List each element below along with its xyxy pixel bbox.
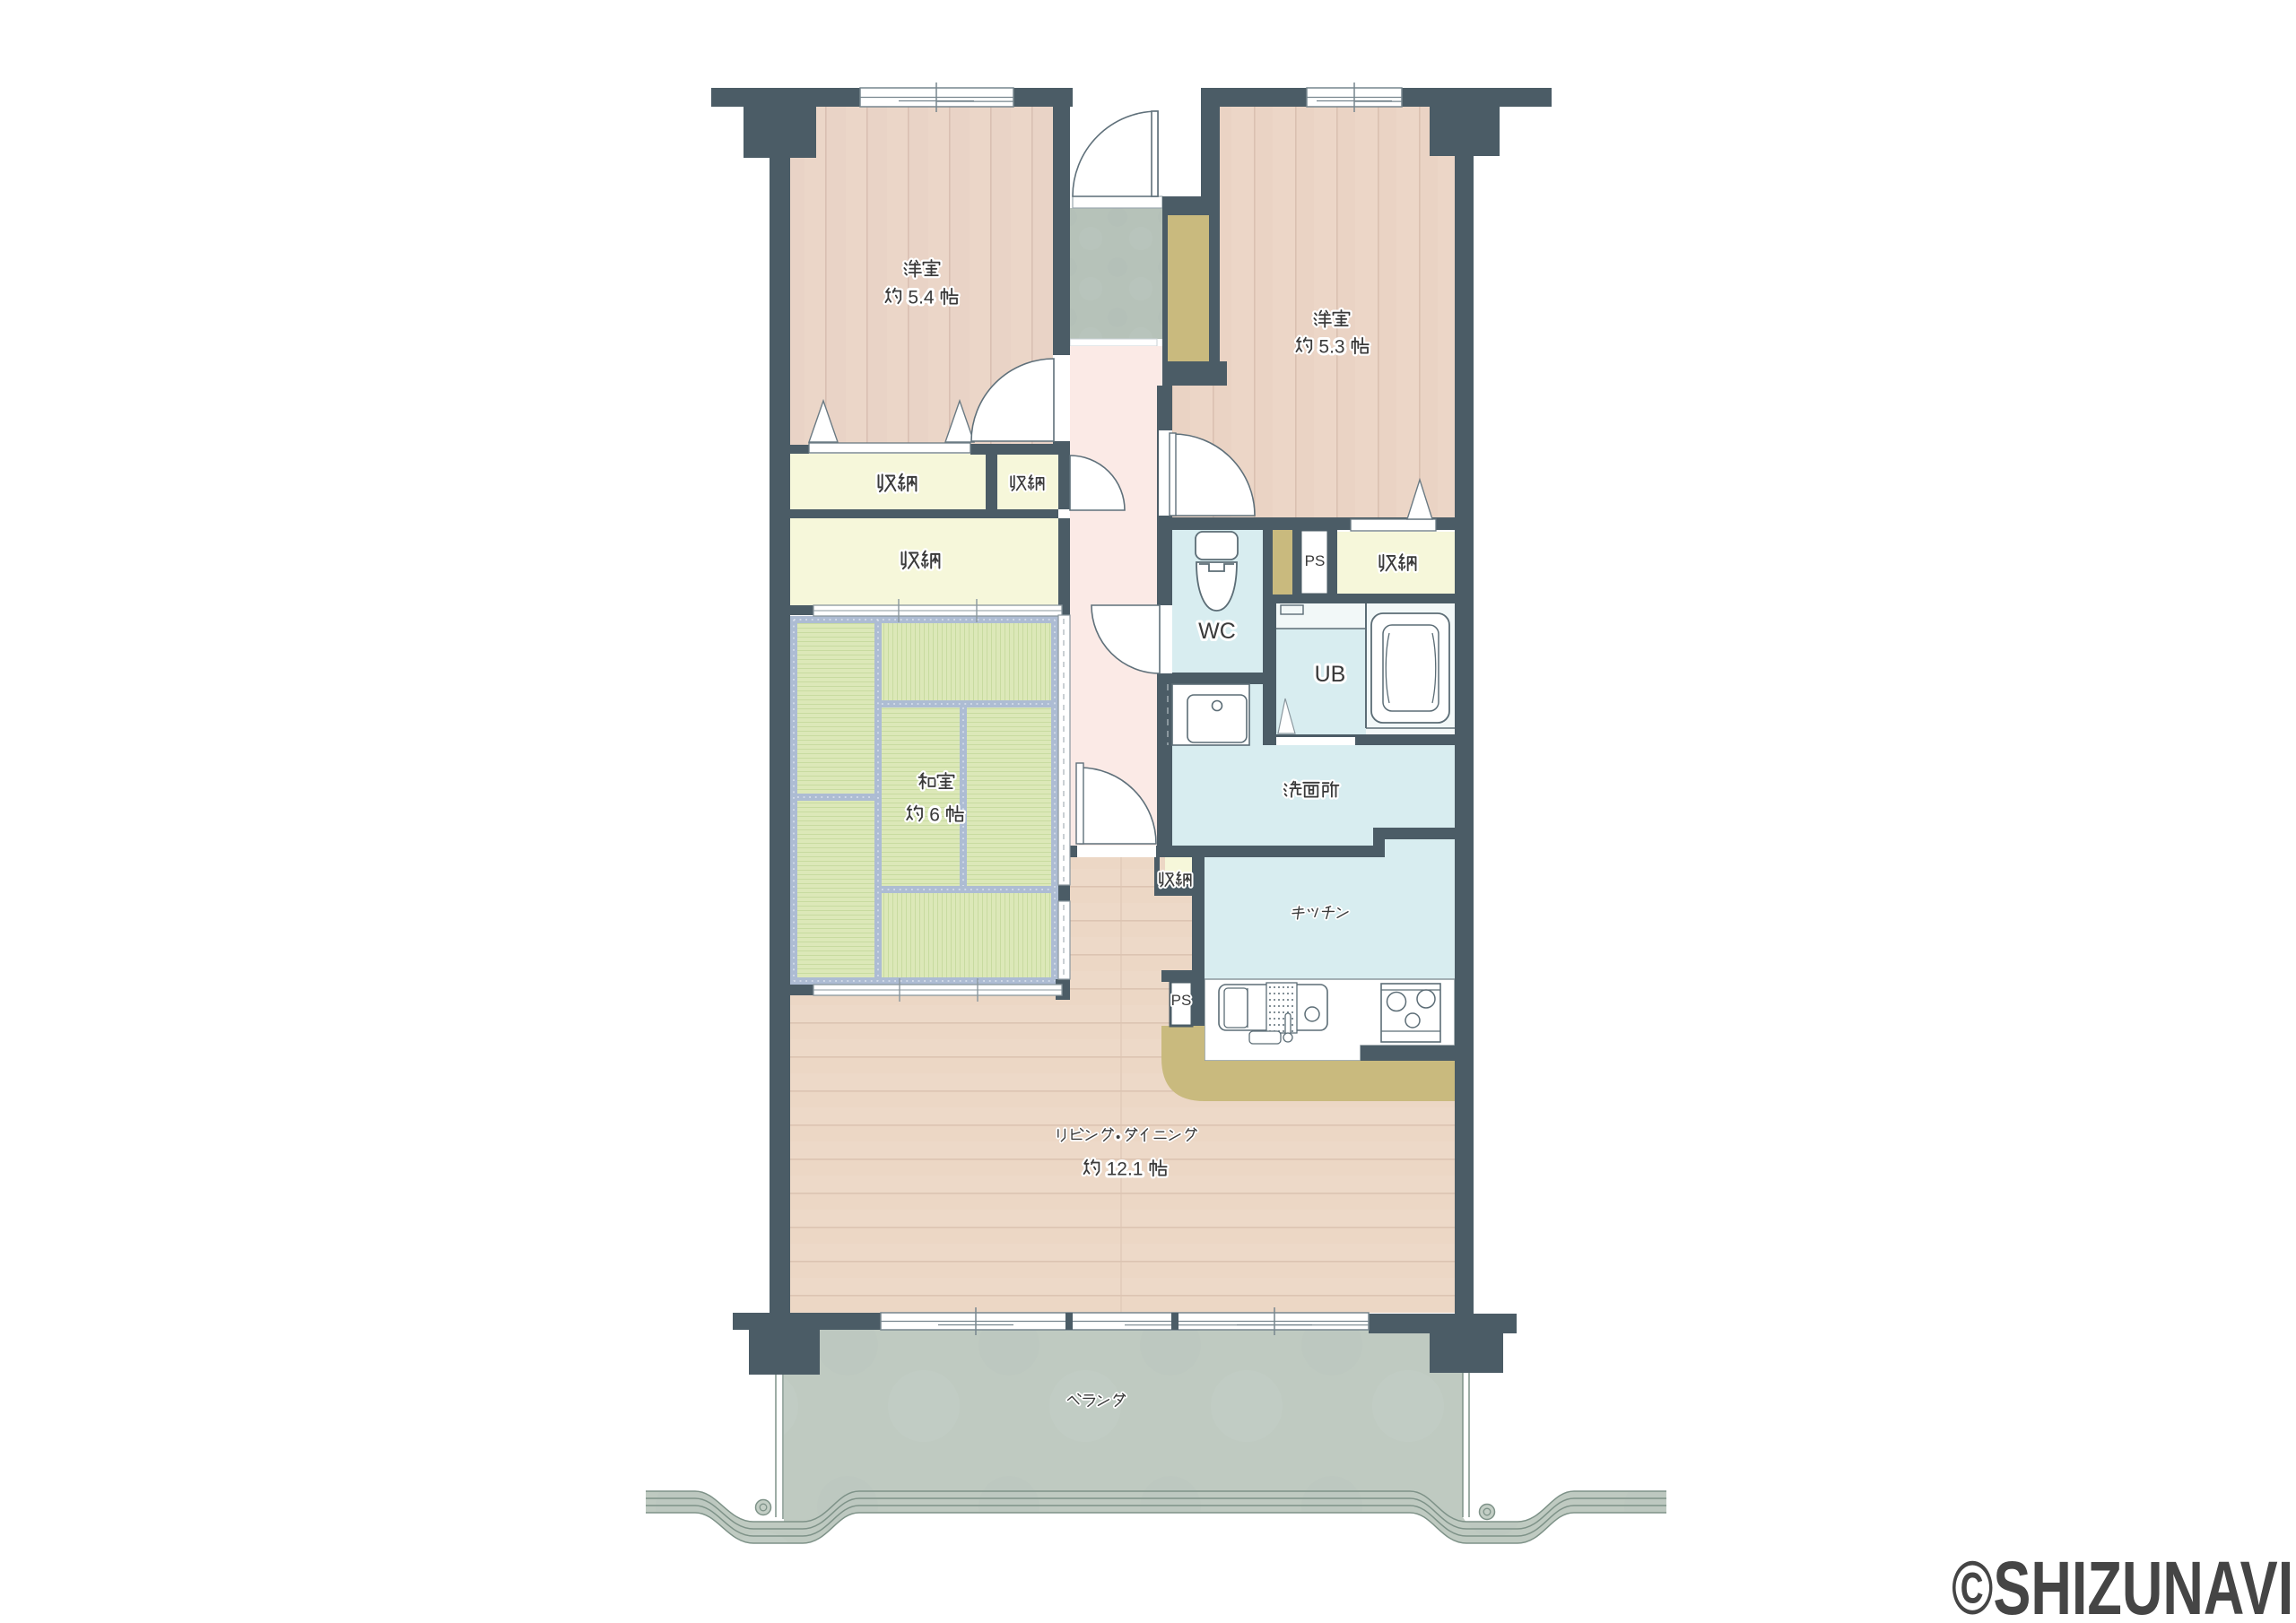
svg-text:5.3: 5.3 — [1318, 337, 1344, 358]
svg-text:©SHIZUNAVI: ©SHIZUNAVI — [1952, 1546, 2293, 1623]
svg-text:WC: WC — [1198, 619, 1236, 644]
svg-text:5.4: 5.4 — [908, 288, 935, 308]
svg-text:UB: UB — [1315, 662, 1346, 687]
svg-text:PS: PS — [1305, 552, 1326, 569]
svg-text:PS: PS — [1171, 992, 1192, 1009]
svg-text:6: 6 — [929, 805, 940, 826]
svg-text:12.1: 12.1 — [1107, 1159, 1144, 1180]
